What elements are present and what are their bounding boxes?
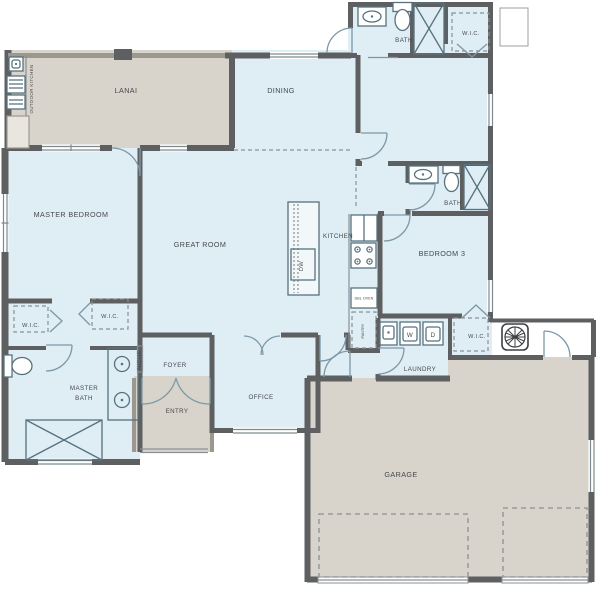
lanai-floor — [8, 50, 232, 148]
toilet-tank-icon — [4, 355, 12, 377]
bedroom3-label: BEDROOM 3 — [419, 249, 466, 258]
sink-drain-icon — [121, 363, 124, 366]
wic-master-left-label: W.I.C. — [22, 323, 40, 329]
toilet-icon — [445, 173, 459, 192]
wic-bedroom3-label: W.I.C. — [468, 334, 486, 340]
sink-drain-icon — [422, 173, 424, 175]
floor-plan: LANAI OUTDOOR KITCHEN DINING GREAT ROOM … — [0, 0, 600, 591]
sink-drain-icon — [371, 15, 373, 17]
exterior-pad-box — [500, 8, 528, 46]
washer-label: W — [407, 332, 413, 339]
range-icon — [351, 243, 376, 268]
garage-label: GARAGE — [384, 470, 417, 479]
window — [233, 428, 297, 435]
window — [42, 145, 100, 152]
wall-column — [114, 49, 132, 60]
window — [589, 440, 596, 492]
double-oven-label: DBL OVEN — [355, 297, 374, 301]
garage-floor — [307, 357, 592, 582]
bath-right-label: BATH — [444, 200, 462, 207]
office-floor — [212, 335, 318, 433]
pantry-label: PANTRY — [361, 323, 365, 338]
lanai-label: LANAI — [115, 86, 138, 95]
office-label: OFFICE — [248, 394, 273, 401]
master-bath-floor — [5, 335, 140, 465]
dining-label: DINING — [267, 86, 295, 95]
master-bath-label-2: BATH — [75, 395, 93, 402]
niche-label: NICHE — [137, 350, 143, 369]
grill-drawer-icon — [7, 95, 25, 109]
bath-upper-label: BATH — [395, 37, 413, 44]
dishwasher-label: DW — [299, 261, 305, 271]
laundry-label: LAUNDRY — [404, 366, 436, 373]
sink-drain-icon — [387, 331, 389, 333]
sink-drain-icon — [121, 399, 124, 402]
window — [270, 52, 318, 59]
master-bedroom-label: MASTER BEDROOM — [34, 210, 109, 219]
great-room-label: GREAT ROOM — [174, 240, 226, 249]
master-bath-label-1: MASTER — [70, 385, 98, 392]
wic-master-right-label: W.I.C. — [101, 314, 119, 320]
ac-fan-icon — [502, 324, 528, 350]
window — [487, 280, 494, 312]
wic-upper-label: W.I.C. — [462, 31, 480, 37]
toilet-icon — [395, 10, 410, 31]
toilet-icon — [12, 358, 32, 375]
sink-drain-icon — [15, 63, 17, 65]
window — [160, 145, 187, 152]
floor-plan-canvas: LANAI OUTDOOR KITCHEN DINING GREAT ROOM … — [0, 0, 600, 591]
window — [2, 194, 9, 252]
foyer-label: FOYER — [163, 362, 186, 369]
outdoor-kitchen-fixtures — [7, 55, 29, 148]
outdoor-cabinet — [7, 116, 29, 148]
kitchen-label: KITCHEN — [323, 233, 353, 240]
window — [487, 94, 494, 126]
outdoor-kitchen-label: OUTDOOR KITCHEN — [29, 65, 34, 114]
dryer-label: D — [431, 332, 436, 339]
entry-label: ENTRY — [166, 408, 189, 415]
